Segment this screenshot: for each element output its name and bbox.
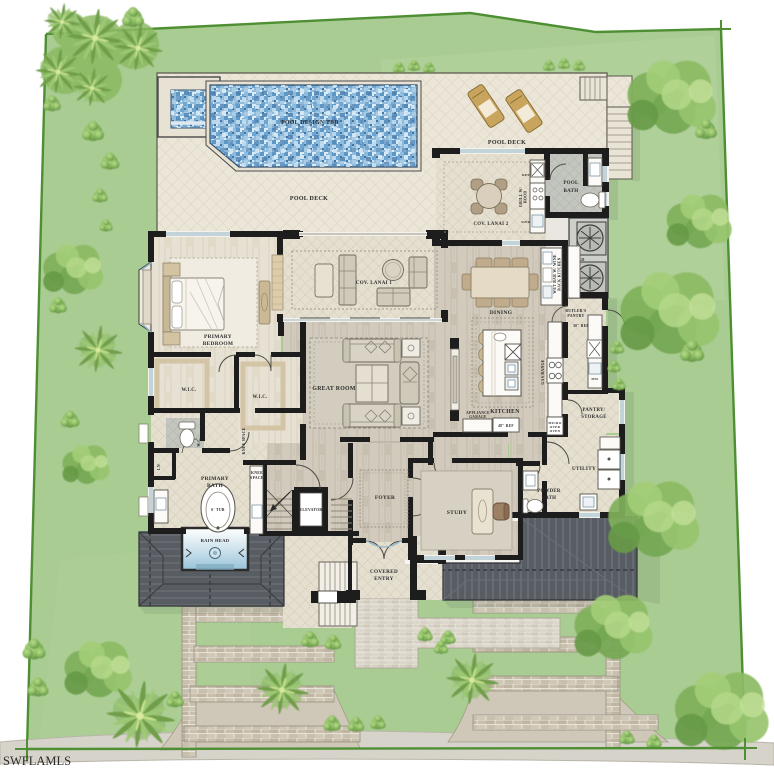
svg-text:SPACE: SPACE [250, 476, 264, 480]
svg-text:COVERED: COVERED [370, 569, 398, 575]
svg-text:COV. LANAI 2: COV. LANAI 2 [473, 222, 508, 227]
svg-text:RAIN HEAD: RAIN HEAD [201, 538, 230, 543]
svg-text:KNEE SPACE: KNEE SPACE [242, 427, 246, 454]
svg-text:FOYER: FOYER [375, 495, 395, 501]
svg-text:PRIMARY: PRIMARY [204, 334, 232, 340]
svg-text:BATH: BATH [207, 483, 224, 489]
svg-text:POOL DECK: POOL DECK [488, 140, 526, 146]
svg-text:LN: LN [157, 464, 161, 470]
svg-text:30" REF: 30" REF [573, 324, 589, 328]
svg-text:SINK: SINK [521, 220, 531, 224]
svg-text:HOOD: HOOD [524, 191, 528, 204]
svg-text:GREAT ROOM: GREAT ROOM [312, 386, 355, 392]
svg-text:STUDY: STUDY [447, 510, 467, 516]
svg-text:MW: MW [591, 377, 599, 381]
svg-text:PANTRY/: PANTRY/ [583, 408, 606, 413]
svg-text:GRILL W/: GRILL W/ [519, 186, 523, 207]
svg-text:BUTLER'S: BUTLER'S [565, 309, 586, 313]
svg-text:W.I.C.: W.I.C. [252, 395, 267, 400]
svg-text:W.C.: W.C. [197, 437, 201, 446]
svg-text:WET BAR W/ WINE: WET BAR W/ WINE [553, 254, 557, 294]
svg-text:GARAGE: GARAGE [469, 415, 487, 419]
svg-text:ENTRY: ENTRY [374, 576, 393, 582]
svg-text:GAS RANGE: GAS RANGE [541, 359, 545, 384]
svg-text:48" REF: 48" REF [498, 424, 514, 428]
svg-text:PRIMARY: PRIMARY [201, 476, 229, 482]
svg-text:UTILITY: UTILITY [572, 466, 596, 472]
svg-text:BATH: BATH [542, 496, 556, 501]
svg-text:PANTRY: PANTRY [567, 314, 584, 318]
svg-text:REF: REF [522, 173, 530, 177]
svg-text:ELEVATOR: ELEVATOR [300, 508, 323, 512]
svg-text:BATH: BATH [564, 189, 579, 194]
svg-text:BACK KITCHEN: BACK KITCHEN [558, 257, 562, 290]
svg-text:POOL DECK: POOL DECK [290, 196, 328, 202]
svg-text:KNEE: KNEE [251, 471, 263, 475]
svg-text:COV. LANAI 1: COV. LANAI 1 [356, 281, 393, 286]
svg-text:POOL: POOL [563, 181, 579, 186]
svg-text:OVEN: OVEN [550, 429, 561, 433]
svg-text:BEDROOM: BEDROOM [203, 341, 234, 347]
svg-text:KITCHEN: KITCHEN [490, 409, 520, 415]
svg-text:POOL DESIGN TBD: POOL DESIGN TBD [281, 120, 339, 126]
svg-text:SWFLAMLS: SWFLAMLS [3, 754, 71, 768]
svg-text:6' TUB: 6' TUB [211, 508, 225, 512]
svg-text:W.I.C.: W.I.C. [181, 388, 196, 393]
svg-text:POWDER: POWDER [537, 489, 561, 494]
svg-text:STORAGE: STORAGE [581, 415, 606, 420]
svg-text:DINING: DINING [490, 310, 513, 316]
